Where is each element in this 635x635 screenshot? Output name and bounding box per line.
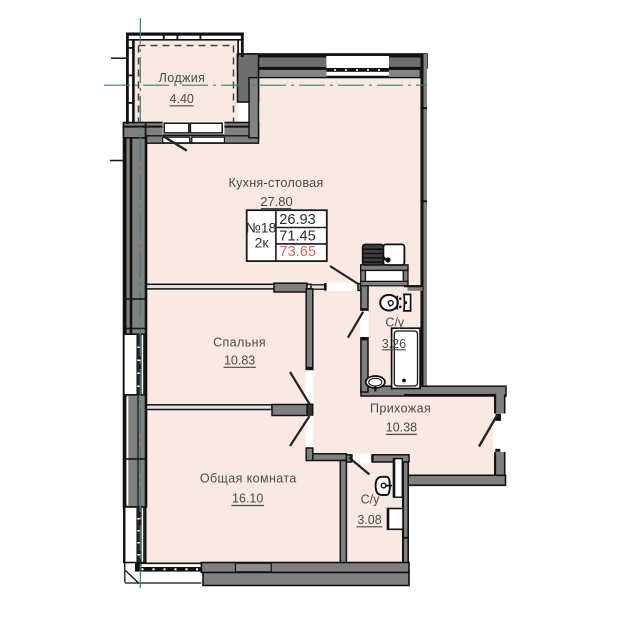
svg-text:2к: 2к: [255, 234, 270, 250]
svg-text:26.93: 26.93: [279, 212, 316, 228]
svg-text:С/у: С/у: [385, 315, 405, 329]
svg-text:Прихожая: Прихожая: [370, 402, 431, 416]
svg-text:16.10: 16.10: [232, 492, 263, 506]
svg-text:71.45: 71.45: [279, 229, 316, 245]
svg-text:Общая комната: Общая комната: [200, 472, 297, 486]
svg-text:Лоджия: Лоджия: [159, 71, 206, 85]
svg-text:4.40: 4.40: [170, 92, 194, 106]
svg-text:73.65: 73.65: [279, 244, 316, 260]
svg-text:27.80: 27.80: [260, 194, 293, 209]
svg-text:№18: №18: [246, 219, 277, 235]
svg-text:3.26: 3.26: [382, 337, 406, 351]
svg-text:С/у: С/у: [361, 493, 381, 507]
svg-text:10.83: 10.83: [224, 354, 255, 368]
svg-text:3.08: 3.08: [357, 513, 381, 527]
svg-text:10.38: 10.38: [386, 421, 417, 435]
svg-text:Кухня-столовая: Кухня-столовая: [229, 176, 324, 190]
svg-text:Спальня: Спальня: [213, 336, 266, 350]
